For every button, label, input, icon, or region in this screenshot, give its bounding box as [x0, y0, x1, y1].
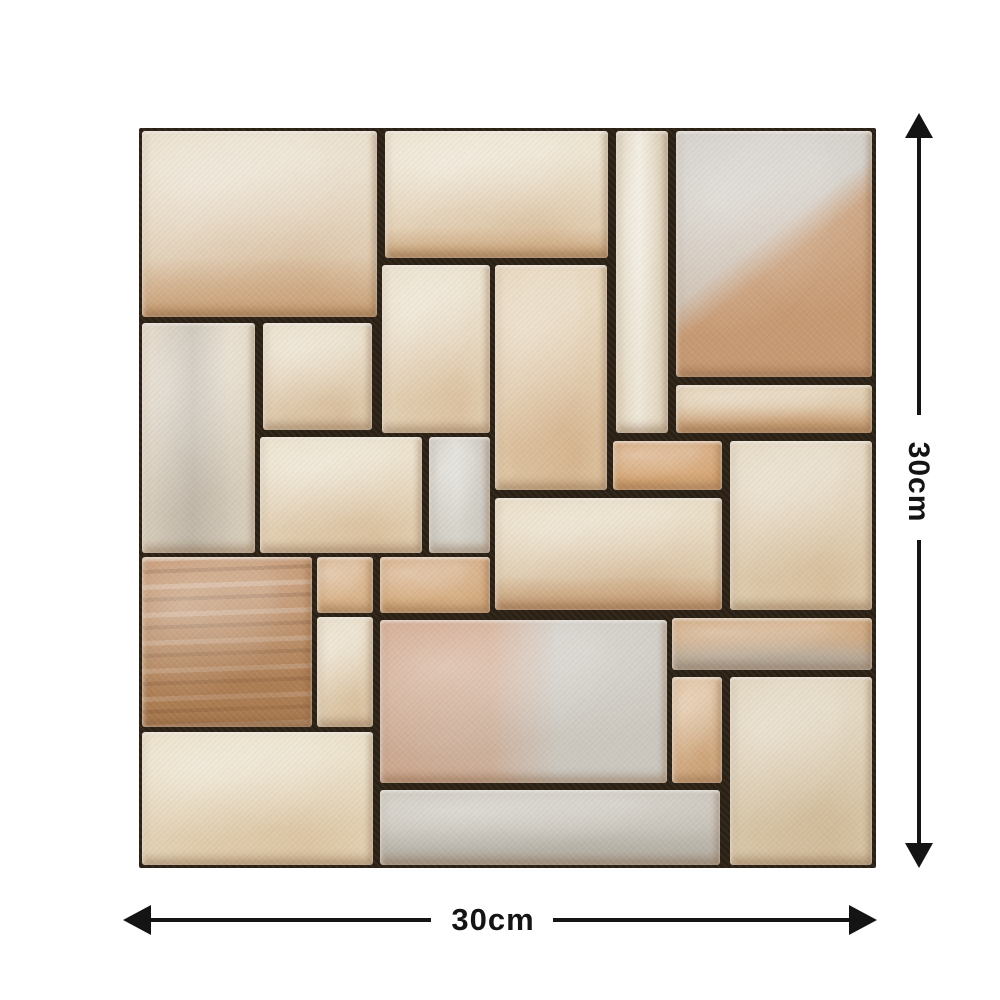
width-dimension-label: 30cm	[433, 898, 553, 942]
width-arrow-line-left	[150, 918, 431, 922]
arrow-down-icon	[905, 843, 933, 868]
stone-block-small-tan-wide	[380, 557, 490, 613]
height-arrow-line-lower	[917, 540, 921, 844]
arrow-up-icon	[905, 113, 933, 138]
stone-block-center-wide	[495, 498, 722, 610]
arrow-right-icon	[849, 905, 877, 935]
stone-block-top-left-large	[142, 131, 377, 317]
stone-block-mid-left-block	[260, 437, 422, 553]
stone-block-mid-cream-tall	[495, 265, 607, 490]
stone-block-bottom-center-large	[380, 620, 667, 783]
stone-block-left-small-square	[263, 323, 372, 430]
stone-block-mid-cream-a	[382, 265, 490, 433]
height-arrow-line-upper	[917, 136, 921, 415]
tile-panel	[139, 128, 876, 868]
stone-block-top-mid	[385, 131, 608, 258]
stone-block-right-mid-large	[730, 441, 872, 610]
stone-block-right-band-low	[672, 618, 872, 670]
stone-block-left-brown-veined	[142, 557, 312, 727]
stone-block-bottom-gray-band	[380, 790, 720, 865]
arrow-left-icon	[123, 905, 151, 935]
stone-block-mid-orange-small	[613, 441, 722, 490]
stone-block-bottom-right-large	[730, 677, 872, 865]
stone-block-bottom-left	[142, 732, 373, 865]
stone-block-mid-cream-narrow	[317, 617, 373, 727]
stone-block-mid-gray-narrow	[429, 437, 490, 553]
stone-block-left-tall	[142, 323, 255, 553]
stone-block-top-right-large	[676, 131, 872, 377]
stone-block-small-tan-square	[317, 557, 373, 613]
stone-block-right-thin-band	[676, 385, 872, 433]
height-dimension-label: 30cm	[881, 449, 955, 515]
stone-block-top-narrow-tall	[616, 131, 668, 433]
stone-block-low-narrow-tan	[672, 677, 722, 783]
width-arrow-line-right	[553, 918, 850, 922]
